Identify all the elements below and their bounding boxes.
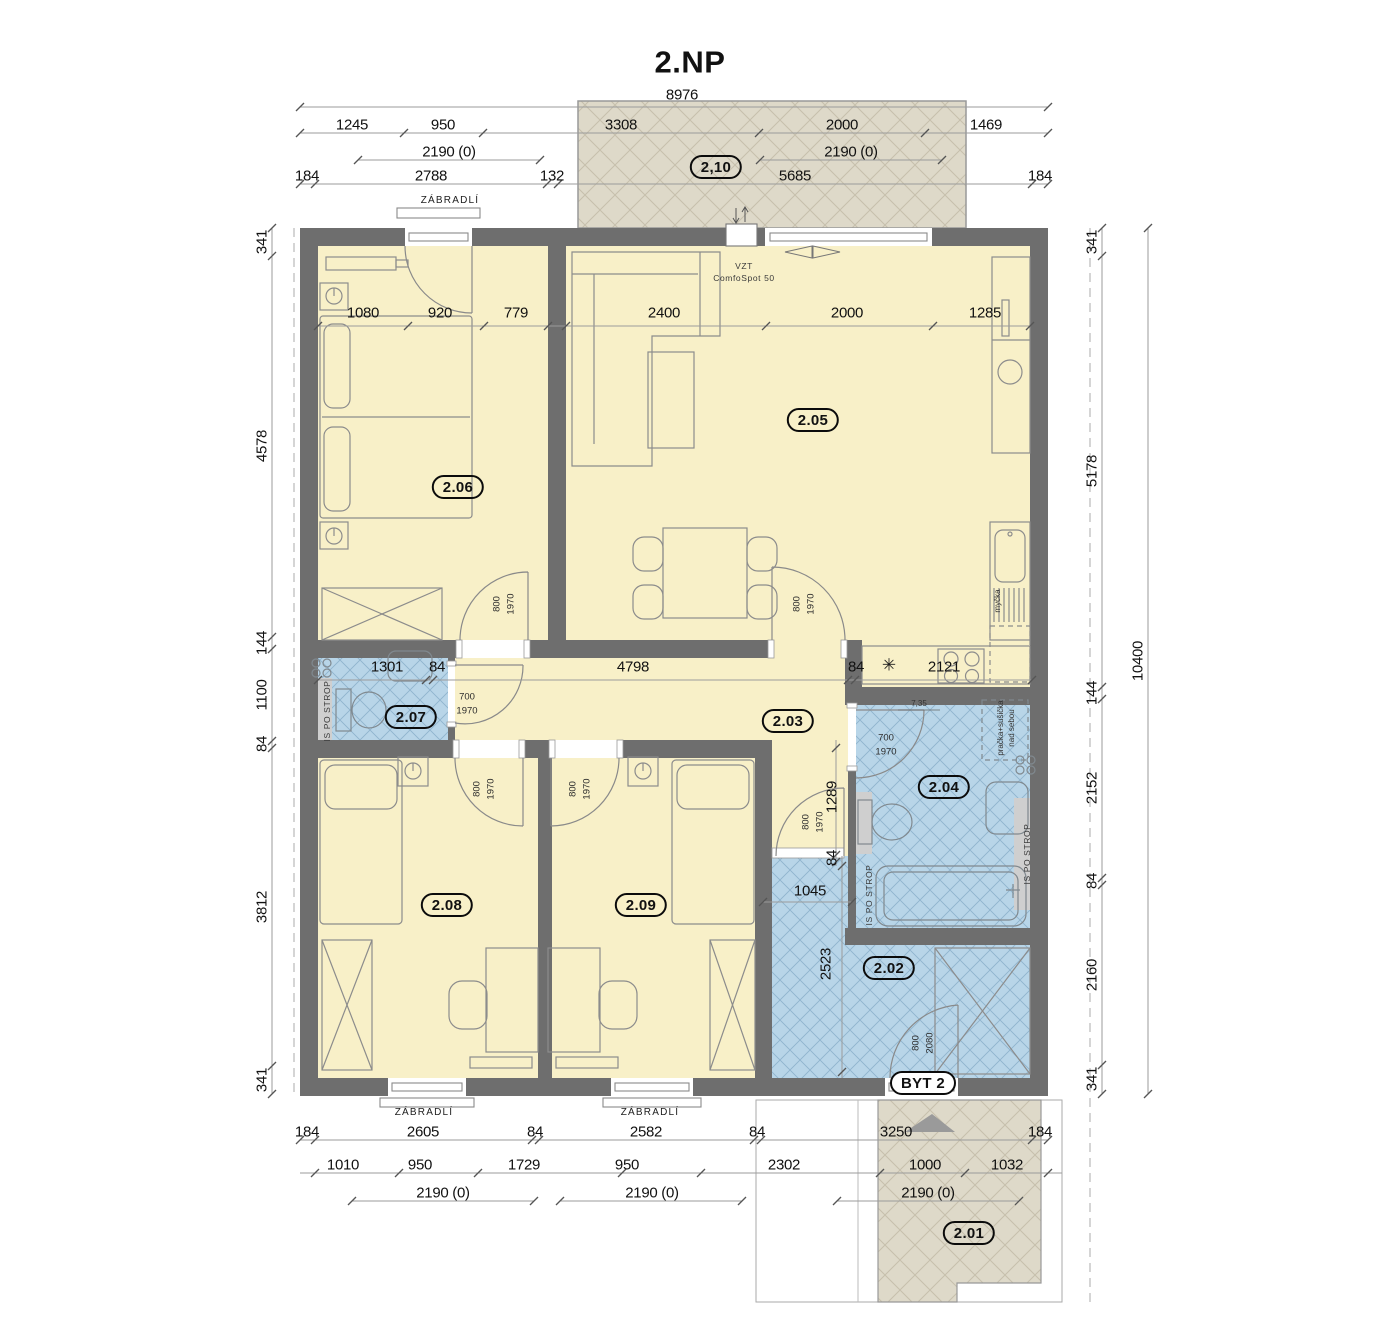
floor-plan-page: 2.NP 2,102.052.062.072.032.042.082.092.0… bbox=[0, 0, 1380, 1320]
railing-bottom-left bbox=[380, 1098, 474, 1107]
room-fills bbox=[318, 246, 1030, 1078]
vzt-unit bbox=[726, 224, 757, 246]
balcony-2-10 bbox=[578, 101, 966, 228]
floor-plan-drawing bbox=[0, 0, 1380, 1320]
railing-top bbox=[397, 208, 480, 218]
railing-bottom-right bbox=[603, 1098, 701, 1107]
cased-opening bbox=[772, 848, 844, 858]
